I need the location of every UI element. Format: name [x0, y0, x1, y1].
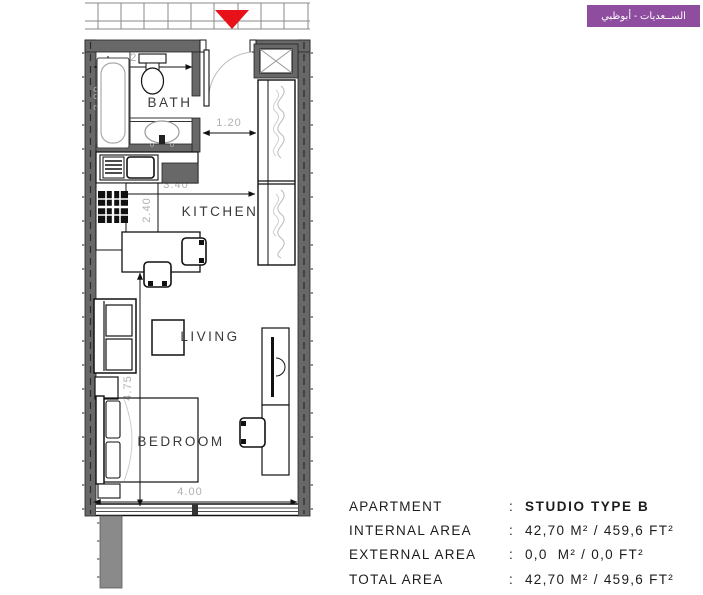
dim-entry-width: 1.20 — [216, 117, 241, 129]
info-row-total-area: TOTAL AREA : 42,70 M² / 459,6 FT² — [349, 567, 674, 591]
bathtub-icon — [97, 58, 129, 148]
info-value: STUDIO TYPE B — [525, 499, 649, 514]
shaft — [254, 44, 298, 78]
stove-icon — [98, 191, 128, 223]
wardrobe — [258, 80, 295, 265]
room-label-living: LIVING — [180, 329, 239, 344]
info-row-internal-area: INTERNAL AREA : 42,70 M² / 459,6 FT² — [349, 518, 674, 542]
tv-unit — [262, 328, 289, 405]
info-separator: : — [509, 547, 525, 562]
logo: الســعديات - أبوظبي — [587, 5, 700, 27]
dim-room-length: 4.75 — [122, 375, 134, 400]
balcony-wall — [99, 516, 123, 588]
dim-kitchen-length: 2.40 — [141, 197, 153, 222]
info-label: INTERNAL AREA — [349, 523, 509, 538]
sink-icon — [130, 118, 192, 147]
entrance-door — [204, 50, 252, 106]
info-row-external-area: EXTERNAL AREA : 0,0 M² / 0,0 FT² — [349, 543, 674, 567]
info-label: EXTERNAL AREA — [349, 547, 509, 562]
info-value: 42,70 M² / 459,6 FT² — [525, 523, 674, 538]
logo-text: الســعديات - أبوظبي — [601, 11, 686, 22]
dining-chair — [144, 262, 171, 287]
desk-chair — [240, 418, 265, 447]
kitchen-sink-icon — [100, 155, 158, 180]
entrance-marker-icon — [215, 10, 249, 29]
info-row-apartment: APARTMENT : STUDIO TYPE B — [349, 494, 674, 518]
desk — [240, 405, 289, 475]
info-value: 0,0 M² / 0,0 FT² — [525, 547, 644, 562]
info-table: APARTMENT : STUDIO TYPE B INTERNAL AREA … — [349, 494, 674, 592]
bench — [98, 484, 120, 498]
info-separator: : — [509, 523, 525, 538]
corridor-tile-grid — [85, 3, 310, 29]
sofa — [94, 299, 136, 373]
dining-table — [122, 232, 206, 287]
room-label-bath: BATH — [147, 95, 192, 110]
room-label-bedroom: BEDROOM — [137, 434, 224, 449]
info-separator: : — [509, 572, 525, 587]
toilet-icon — [139, 54, 166, 94]
info-label: TOTAL AREA — [349, 572, 509, 587]
info-value: 42,70 M² / 459,6 FT² — [525, 572, 674, 587]
info-label: APARTMENT — [349, 499, 509, 514]
floorplan-page: 2.15 2.00 1.20 3.40 2.40 4.75 4.00 — [0, 0, 703, 595]
dim-bedroom-width: 4.00 — [177, 486, 202, 498]
room-label-kitchen: KITCHEN — [182, 204, 259, 219]
info-separator: : — [509, 499, 525, 514]
window — [96, 503, 298, 516]
dining-chair — [182, 238, 206, 265]
coffee-table — [152, 320, 184, 355]
